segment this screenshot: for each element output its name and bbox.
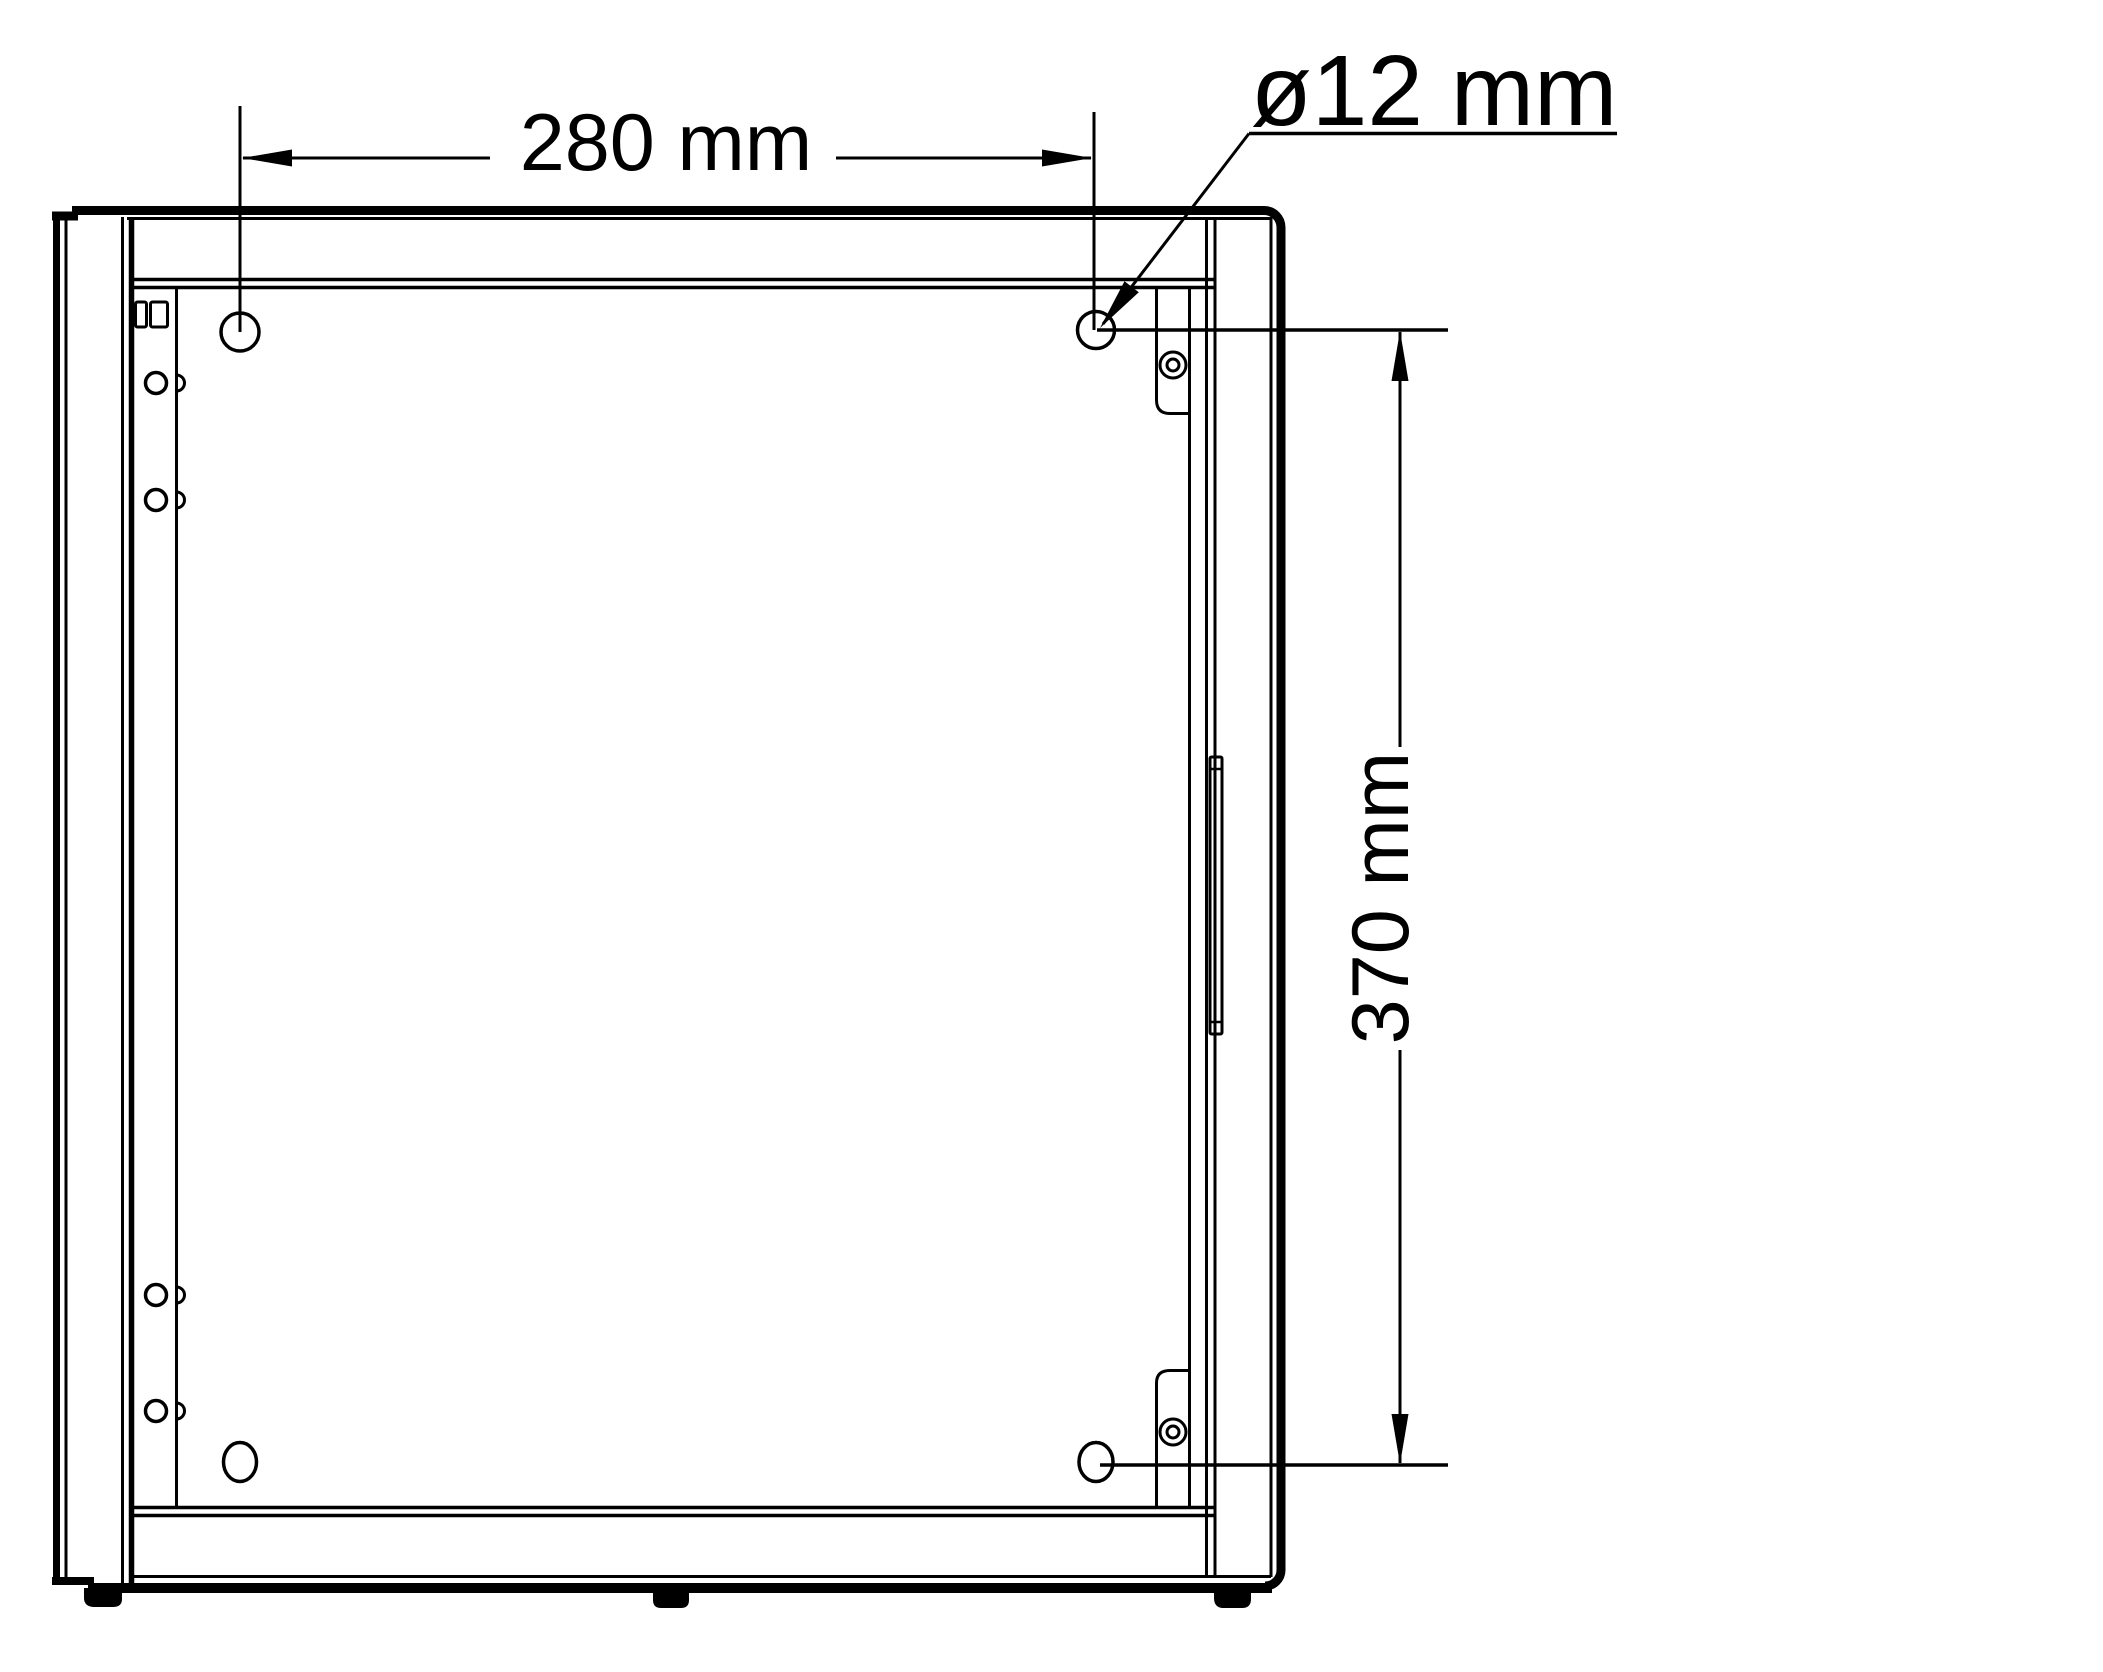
arrowhead-right-icon [1042, 150, 1092, 167]
screw-bottom-inner [1167, 1426, 1179, 1438]
dimension-hole-diameter: ø12 mm [1100, 35, 1617, 328]
technical-drawing-page: 280 mm ø12 mm 370 mm [0, 0, 2103, 1672]
foot-left [84, 1588, 122, 1607]
mounting-hole-bottom-right [1079, 1443, 1113, 1482]
dimension-label-diameter: ø12 mm [1251, 35, 1618, 147]
arrowhead-down-icon [1392, 1414, 1409, 1464]
cabinet-outline [52, 211, 1281, 1589]
mounting-hole-bottom-left [224, 1443, 257, 1482]
dimension-label-width: 280 mm [520, 98, 813, 188]
dimension-label-height: 370 mm [1336, 752, 1426, 1045]
vent-slot-large [151, 302, 168, 327]
rivet-hole-4 [146, 1401, 167, 1422]
vent-slot-small [136, 302, 147, 327]
frame-top-and-right-outer-edge [72, 211, 1281, 1587]
dimension-drawing: 280 mm ø12 mm 370 mm [0, 0, 2103, 1672]
arrowhead-up-icon [1392, 331, 1409, 381]
foot-center [653, 1590, 689, 1608]
rivet-hole-1 [146, 373, 167, 394]
rivet-hole-3 [146, 1285, 167, 1306]
screw-bottom-outer [1160, 1419, 1186, 1445]
screw-top-outer [1160, 352, 1186, 378]
screw-top-inner [1167, 359, 1179, 371]
rivet-hole-2 [146, 490, 167, 511]
foot-right [1214, 1588, 1251, 1608]
arrowhead-left-icon [242, 150, 292, 167]
mounting-holes [221, 312, 1115, 1482]
